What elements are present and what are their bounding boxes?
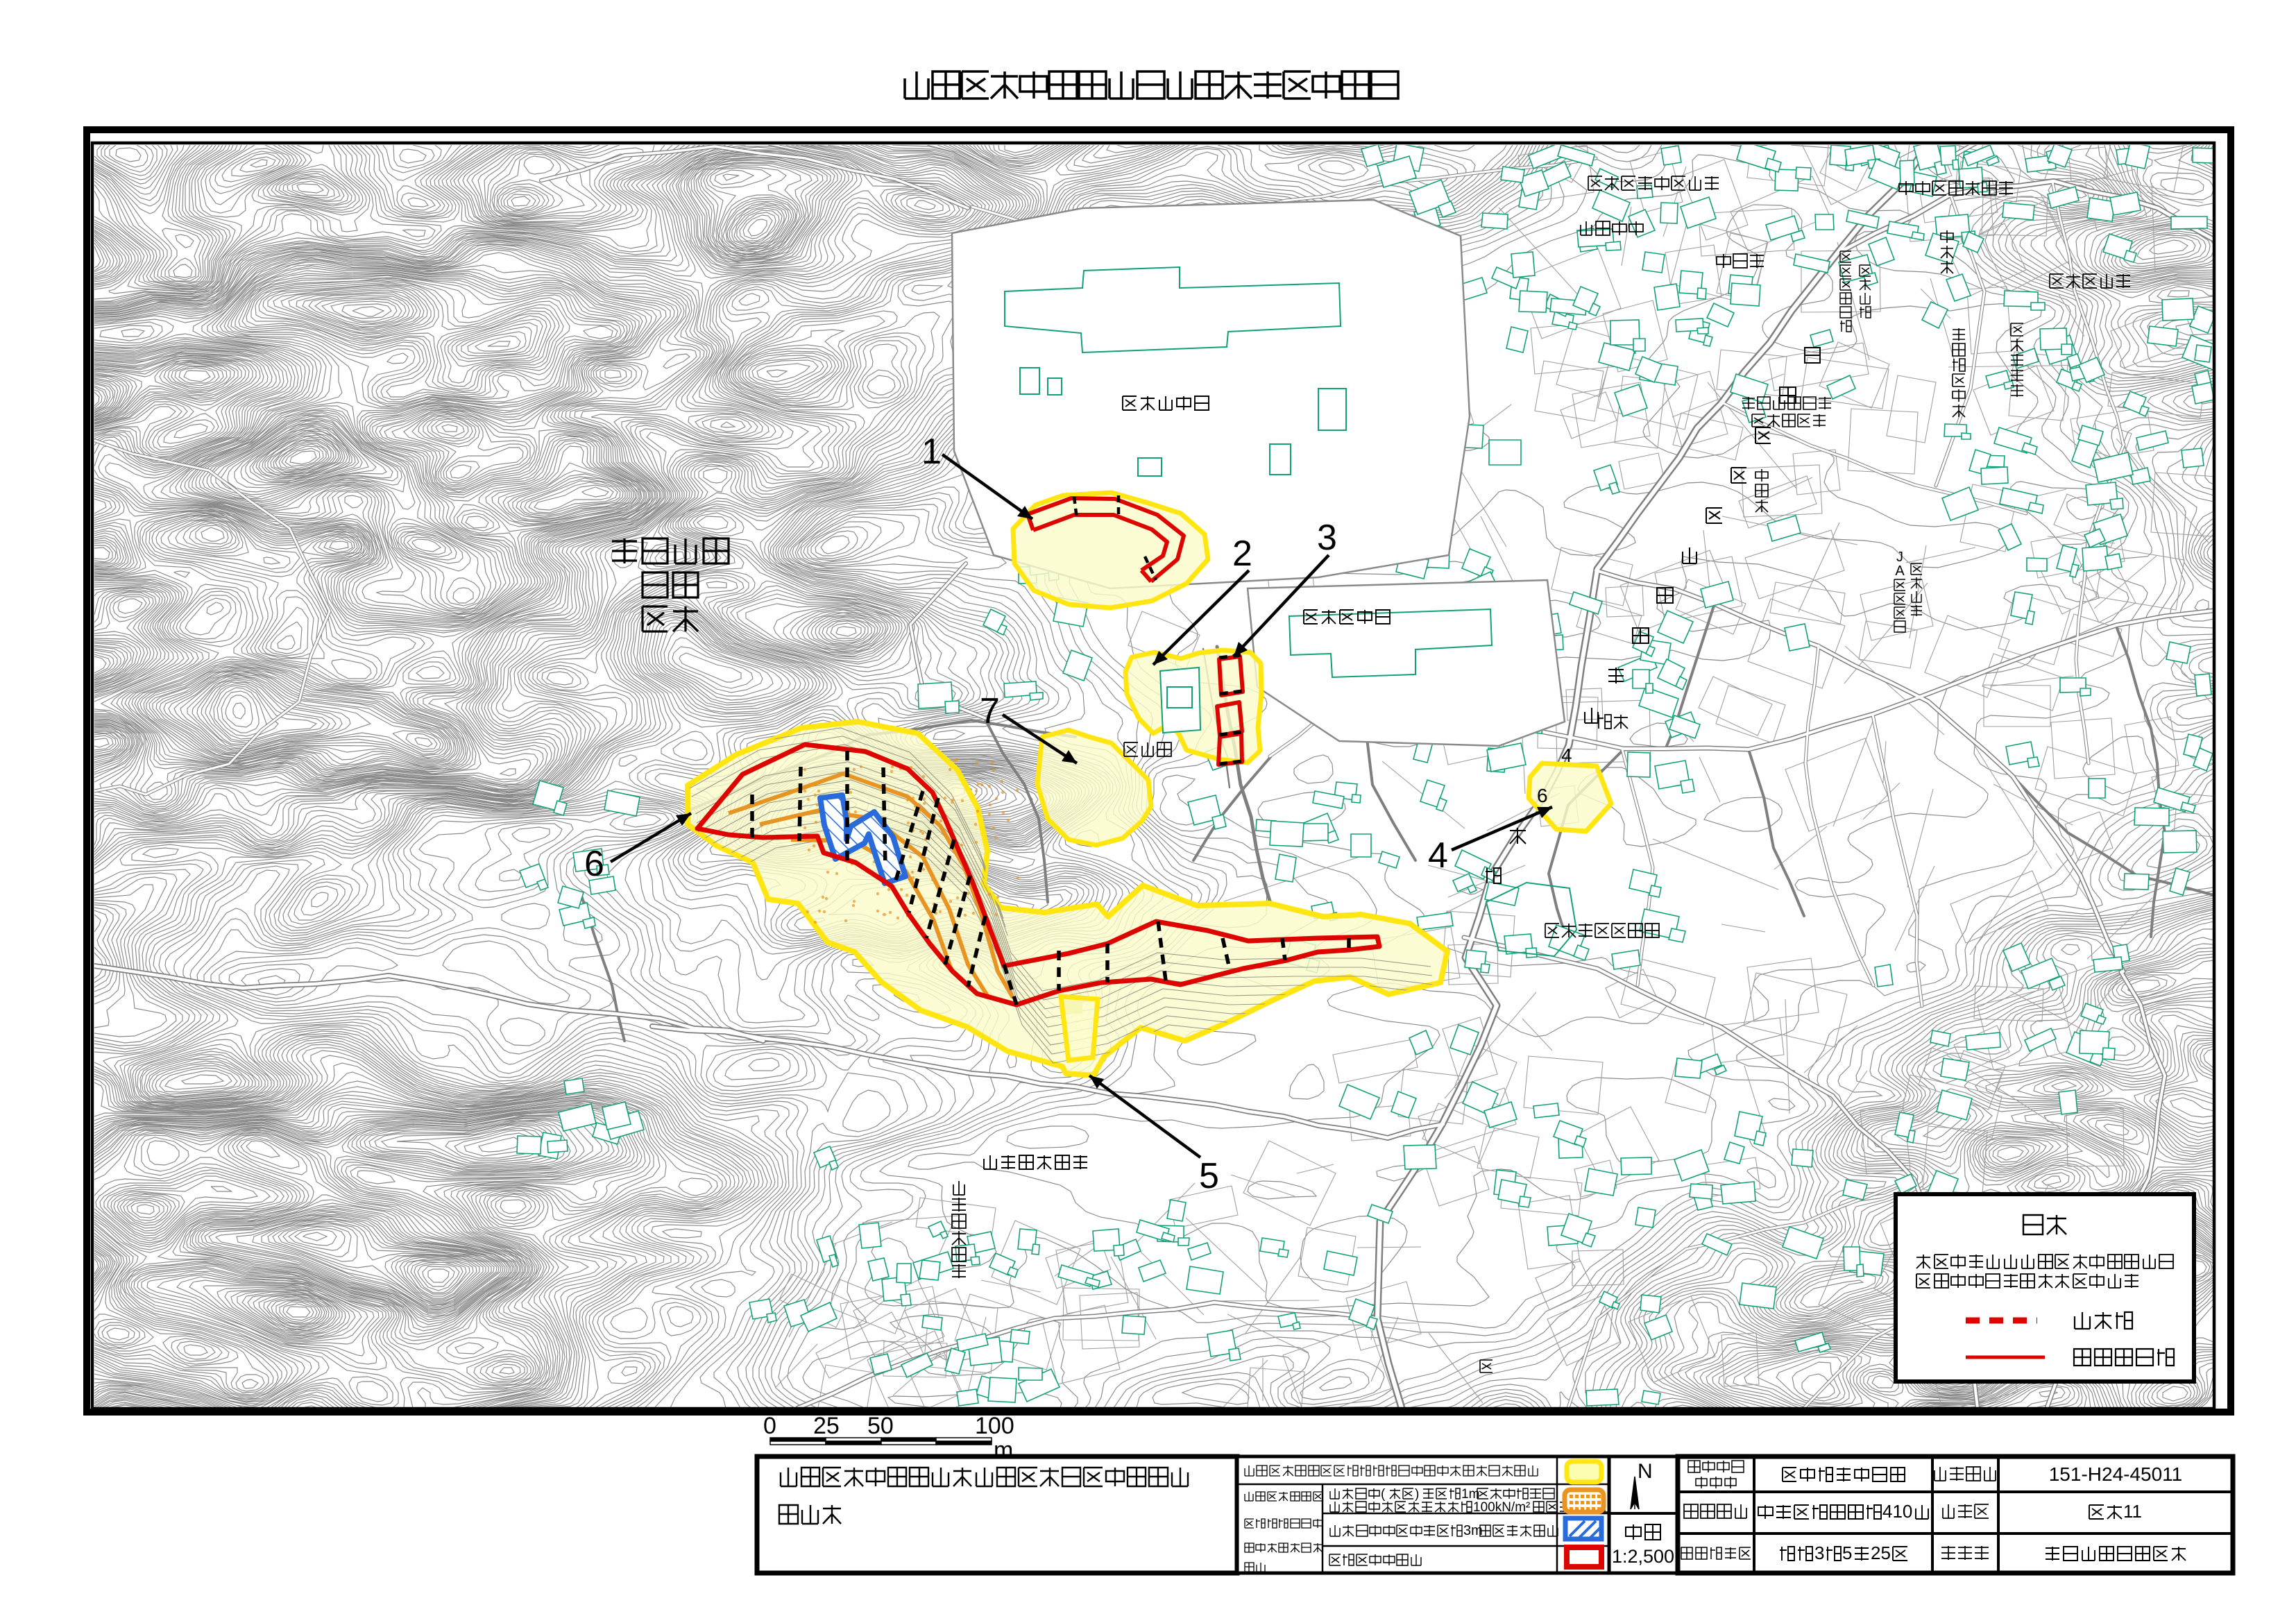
svg-text:50: 50 bbox=[867, 1413, 894, 1439]
svg-text:): ) bbox=[1415, 1487, 1419, 1502]
svg-text:5: 5 bbox=[1199, 1156, 1219, 1196]
svg-text:100kN/m²: 100kN/m² bbox=[1473, 1500, 1530, 1515]
svg-text:3: 3 bbox=[1814, 1543, 1824, 1563]
svg-text:6: 6 bbox=[1537, 785, 1548, 806]
svg-text:25: 25 bbox=[813, 1413, 840, 1439]
svg-text:5: 5 bbox=[1842, 1543, 1852, 1563]
svg-text:1:2,500: 1:2,500 bbox=[1612, 1546, 1674, 1567]
svg-text:7: 7 bbox=[980, 691, 1000, 731]
svg-text:151-H24-45011: 151-H24-45011 bbox=[2049, 1463, 2183, 1485]
svg-text:4: 4 bbox=[1561, 745, 1572, 766]
svg-text:A: A bbox=[1895, 563, 1905, 579]
svg-text:J: J bbox=[1896, 550, 1903, 565]
svg-text:2: 2 bbox=[1232, 534, 1252, 574]
svg-text:6: 6 bbox=[584, 844, 604, 884]
svg-text:25: 25 bbox=[1871, 1543, 1891, 1563]
svg-text:0: 0 bbox=[763, 1413, 776, 1439]
svg-text:3: 3 bbox=[1317, 518, 1337, 558]
svg-text:100: 100 bbox=[975, 1413, 1014, 1439]
svg-text:N: N bbox=[1638, 1460, 1653, 1483]
svg-text:4: 4 bbox=[1428, 835, 1448, 876]
svg-text:11: 11 bbox=[2123, 1501, 2142, 1522]
svg-text:(: ( bbox=[1381, 1487, 1386, 1502]
svg-text:1: 1 bbox=[921, 432, 942, 472]
svg-text:410: 410 bbox=[1882, 1501, 1912, 1522]
